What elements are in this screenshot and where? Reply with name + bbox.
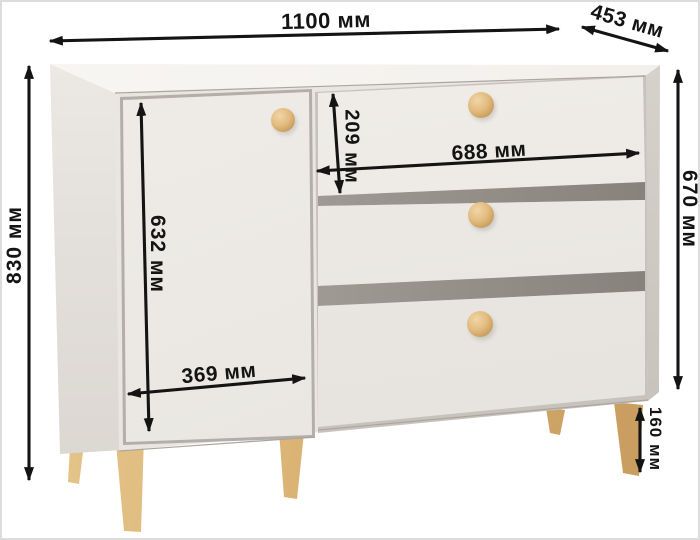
label-drawer-height: 209 мм (340, 92, 363, 202)
dimension-diagram: 1100 мм 453 мм 830 мм 670 мм 632 мм 369 … (0, 0, 700, 540)
dimension-arrows (2, 2, 700, 540)
bottom-edge-right (318, 400, 648, 430)
label-overall-height: 830 мм (3, 190, 27, 300)
bottom-edge-left (119, 437, 315, 451)
top-front-edge (115, 76, 645, 93)
label-leg-height: 160 мм (645, 394, 665, 484)
label-overall-width: 1100 мм (271, 7, 382, 36)
label-body-height: 670 мм (677, 154, 700, 264)
label-door-height: 632 мм (145, 199, 169, 309)
